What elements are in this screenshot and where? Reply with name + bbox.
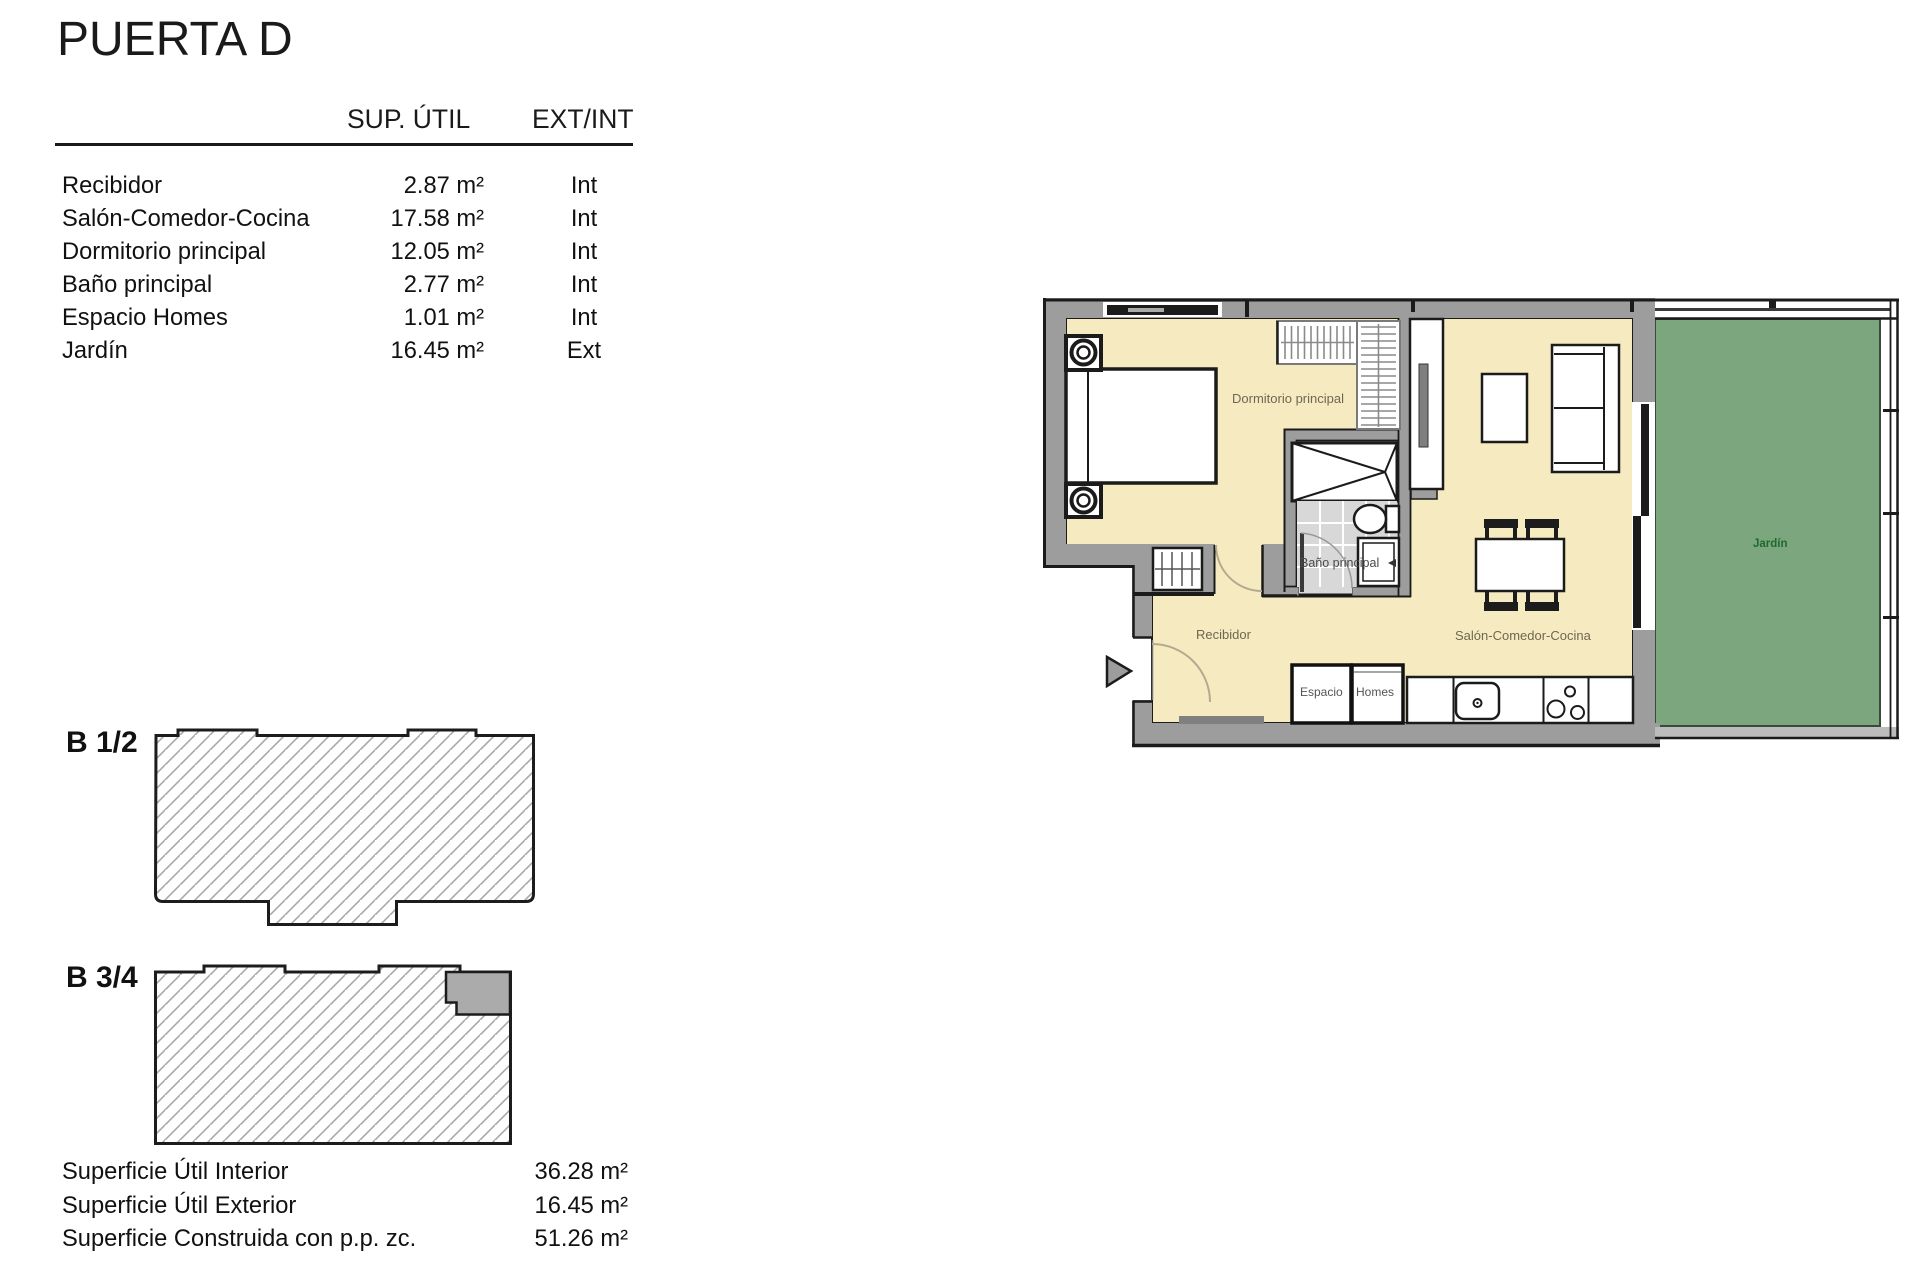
svg-text:Jardín: Jardín — [1753, 538, 1788, 550]
svg-text:Homes: Homes — [1356, 685, 1394, 699]
svg-text:Baño principal: Baño principal — [1300, 556, 1379, 570]
svg-text:Recibidor: Recibidor — [1196, 627, 1252, 642]
svg-text:Salón-Comedor-Cocina: Salón-Comedor-Cocina — [1455, 628, 1592, 643]
svg-text:Espacio: Espacio — [1300, 685, 1343, 699]
svg-text:Dormitorio principal: Dormitorio principal — [1232, 391, 1344, 406]
